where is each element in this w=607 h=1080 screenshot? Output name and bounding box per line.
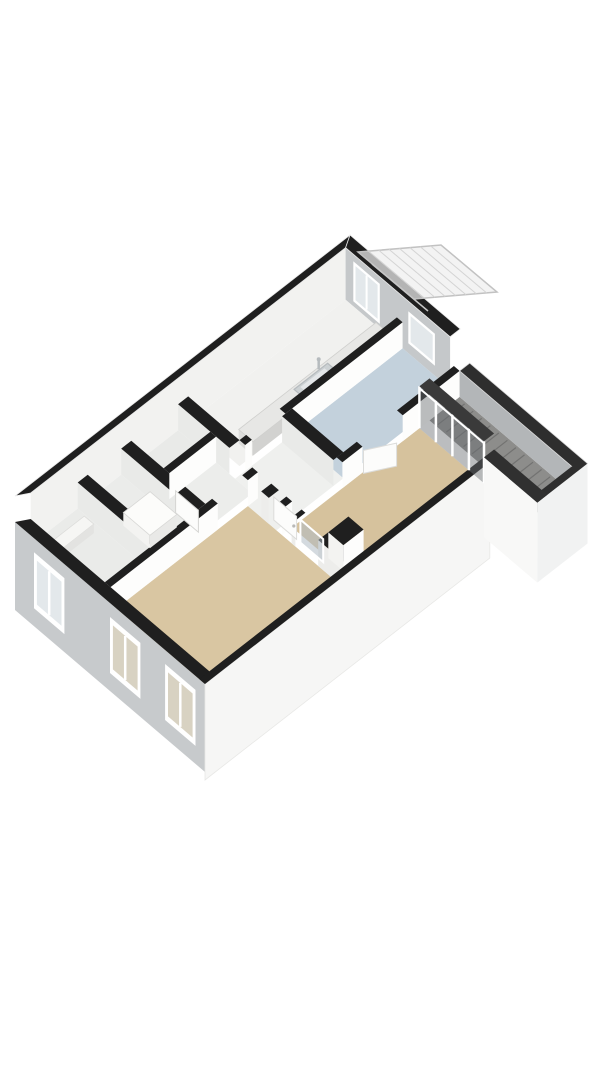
kitchen-faucet-head — [317, 357, 321, 361]
wall-kitchen-south-face — [245, 440, 252, 471]
bedroom-door-handle — [292, 524, 295, 527]
floor-plan-canvas — [0, 0, 607, 1080]
floor-plan-3d-render — [0, 0, 607, 1080]
